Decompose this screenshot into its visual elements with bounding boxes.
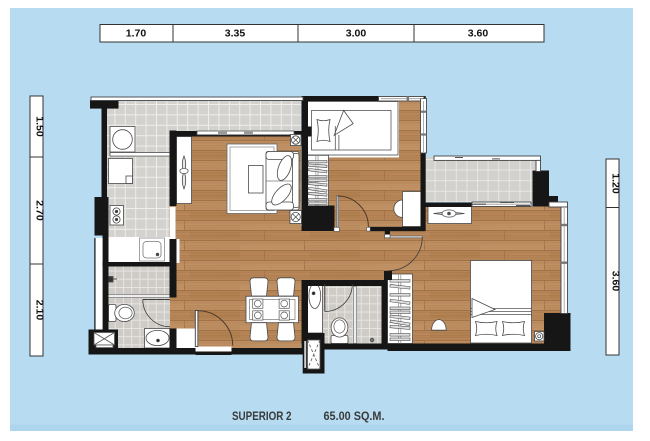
svg-text:2.70: 2.70 [34,200,46,221]
svg-text:3.60: 3.60 [610,271,622,292]
svg-text:1.20: 1.20 [610,173,622,194]
svg-text:3.00: 3.00 [346,28,367,40]
svg-text:1.50: 1.50 [34,116,46,137]
svg-text:SUPERIOR 2: SUPERIOR 2 [232,411,292,423]
svg-text:1.70: 1.70 [126,28,147,40]
svg-text:3.60: 3.60 [468,28,489,40]
svg-text:3.35: 3.35 [225,28,246,40]
svg-text:2.10: 2.10 [34,300,46,321]
svg-text:65.00 SQ.M.: 65.00 SQ.M. [324,411,385,423]
